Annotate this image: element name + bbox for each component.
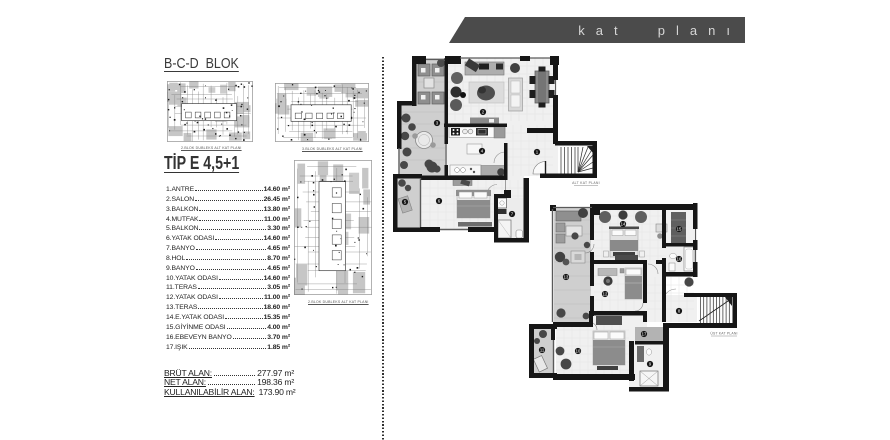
svg-text:14: 14 [621,222,626,227]
svg-text:13: 13 [564,275,569,280]
svg-text:12: 12 [603,292,608,297]
svg-text:17: 17 [642,332,647,337]
svg-text:10: 10 [576,349,581,354]
svg-text:ÜST KAT PLANI: ÜST KAT PLANI [710,332,737,336]
svg-text:16: 16 [677,257,682,262]
svg-text:11: 11 [540,348,545,353]
svg-text:15: 15 [677,227,682,232]
svg-text:ALT KAT PLANI: ALT KAT PLANI [572,181,600,185]
